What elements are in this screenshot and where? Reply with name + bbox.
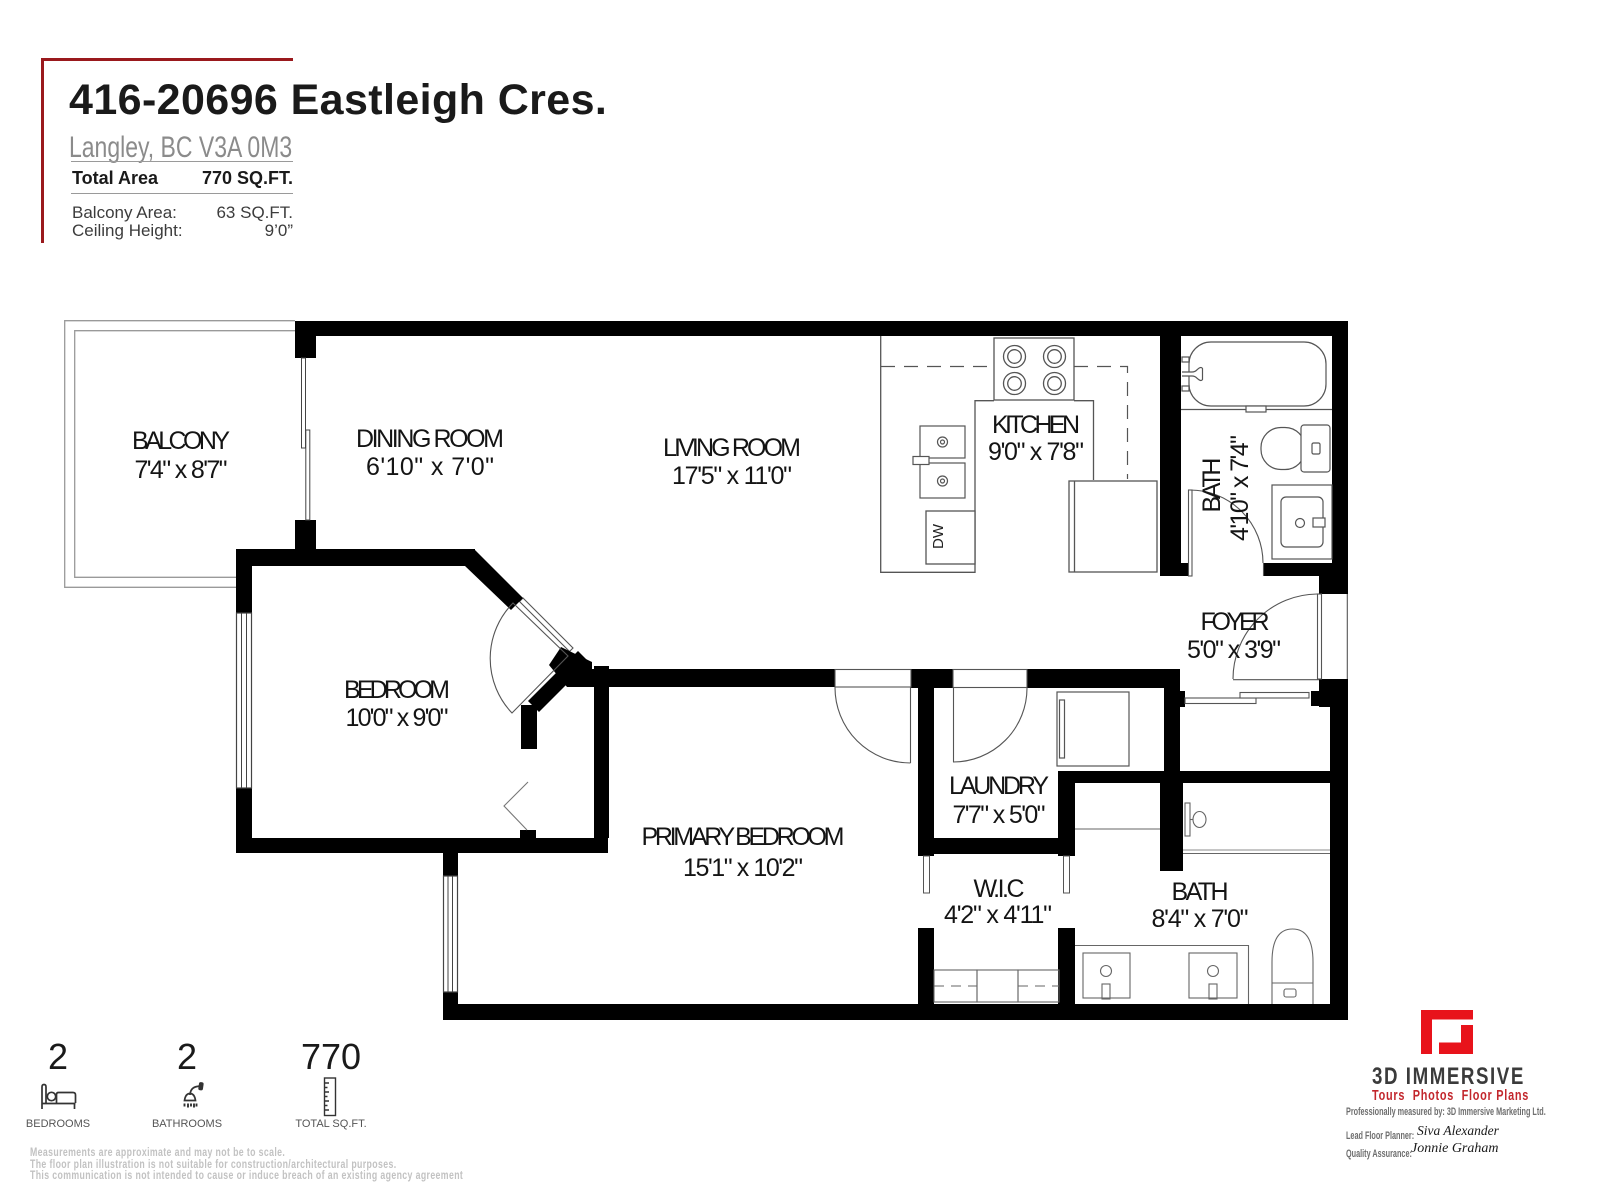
svg-text:8'4" x 7'0": 8'4" x 7'0": [1152, 905, 1249, 933]
svg-text:4'10" x 7'4": 4'10" x 7'4": [1226, 435, 1254, 541]
svg-text:15'1" x 10'2": 15'1" x 10'2": [683, 854, 803, 882]
svg-text:LIVING ROOM: LIVING ROOM: [663, 434, 801, 462]
svg-text:9'0" x 7'8": 9'0" x 7'8": [988, 438, 1084, 466]
svg-text:KITCHEN: KITCHEN: [992, 411, 1080, 439]
svg-text:LAUNDRY: LAUNDRY: [949, 772, 1049, 800]
svg-text:17'5" x 11'0": 17'5" x 11'0": [672, 462, 792, 490]
svg-text:10'0" x 9'0": 10'0" x 9'0": [346, 704, 449, 732]
svg-text:BEDROOM: BEDROOM: [344, 676, 450, 704]
svg-text:6'10" x 7'0": 6'10" x 7'0": [366, 453, 494, 481]
svg-text:W.I.C: W.I.C: [974, 875, 1025, 903]
svg-text:4'2" x 4'11": 4'2" x 4'11": [944, 901, 1052, 929]
svg-text:PRIMARY BEDROOM: PRIMARY BEDROOM: [642, 823, 845, 851]
svg-text:DW: DW: [930, 523, 947, 549]
svg-text:5'0" x 3'9": 5'0" x 3'9": [1187, 636, 1281, 664]
svg-text:BALCONY: BALCONY: [132, 427, 230, 455]
svg-text:BATH: BATH: [1172, 878, 1229, 906]
svg-text:DINING ROOM: DINING ROOM: [356, 425, 504, 453]
svg-text:FOYER: FOYER: [1201, 608, 1270, 636]
svg-text:BATH: BATH: [1198, 458, 1226, 513]
svg-text:7'4" x 8'7": 7'4" x 8'7": [135, 456, 228, 484]
svg-text:7'7" x 5'0": 7'7" x 5'0": [953, 801, 1046, 829]
